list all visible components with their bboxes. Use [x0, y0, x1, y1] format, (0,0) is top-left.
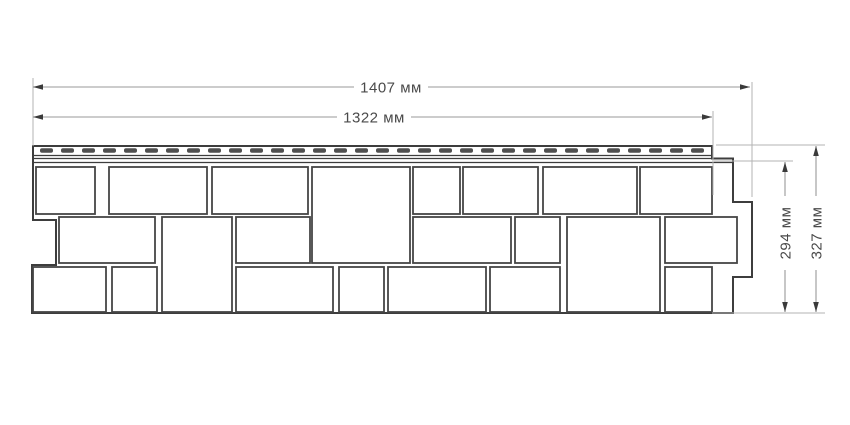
dim-label-hem-width: 1322 мм [343, 109, 405, 126]
nail-slot [502, 148, 515, 153]
stone-block [59, 217, 155, 263]
stone-block [112, 267, 157, 312]
stone-block [515, 217, 560, 263]
stone-block [413, 167, 460, 214]
panel-body [32, 146, 752, 313]
nail-slot [355, 148, 368, 153]
stone-block [312, 167, 410, 263]
nail-slot [313, 148, 326, 153]
arrow-right-total-width [740, 84, 750, 90]
nail-slot [628, 148, 641, 153]
nail-slot [145, 148, 158, 153]
nail-slot [40, 148, 53, 153]
nail-slot [544, 148, 557, 153]
nail-slot [82, 148, 95, 153]
arrow-top-total-height [813, 146, 819, 156]
nail-slot [607, 148, 620, 153]
nail-slot [418, 148, 431, 153]
stone-block [388, 267, 486, 312]
nail-slot [166, 148, 179, 153]
nail-slot [334, 148, 347, 153]
stone-block [162, 217, 232, 312]
stone-block [490, 267, 560, 312]
stone-block [543, 167, 637, 214]
nail-slot [208, 148, 221, 153]
nail-slot [565, 148, 578, 153]
stone-block [640, 167, 712, 214]
siding-panel-drawing: 1407 мм 1322 мм 294 мм 327 мм [0, 0, 850, 425]
stone-block [567, 217, 660, 312]
panel-dimension-drawing: 1407 мм 1322 мм 294 мм 327 мм [0, 0, 850, 425]
dim-label-face-height: 294 мм [777, 207, 794, 260]
nail-slot [670, 148, 683, 153]
arrow-bottom-face-height [782, 302, 788, 312]
nail-slot [271, 148, 284, 153]
stone-block [236, 217, 310, 263]
stone-block [665, 217, 737, 263]
nail-slot [460, 148, 473, 153]
arrow-right-hem-width [702, 114, 712, 120]
stone-block [33, 267, 106, 312]
dim-label-total-height: 327 мм [808, 207, 825, 260]
stone-block [109, 167, 207, 214]
arrow-top-face-height [782, 162, 788, 172]
nail-slot [103, 148, 116, 153]
nail-slot [691, 148, 704, 153]
nail-slot [250, 148, 263, 153]
nail-slot [61, 148, 74, 153]
nail-slot [124, 148, 137, 153]
nail-slot [649, 148, 662, 153]
dim-label-total-width: 1407 мм [360, 79, 422, 96]
nail-slot [481, 148, 494, 153]
stone-block [339, 267, 384, 312]
stone-block [36, 167, 95, 214]
nail-slot [229, 148, 242, 153]
nail-slot [292, 148, 305, 153]
nail-slot [586, 148, 599, 153]
nail-slot [397, 148, 410, 153]
arrow-left-total-width [33, 84, 43, 90]
stone-block [212, 167, 308, 214]
nail-slot [439, 148, 452, 153]
nail-slot [376, 148, 389, 153]
arrow-left-hem-width [33, 114, 43, 120]
nail-slot [187, 148, 200, 153]
stone-block [236, 267, 333, 312]
stone-block [413, 217, 511, 263]
nail-slot [523, 148, 536, 153]
stone-block [665, 267, 712, 312]
stone-block [463, 167, 538, 214]
arrow-bottom-total-height [813, 302, 819, 312]
